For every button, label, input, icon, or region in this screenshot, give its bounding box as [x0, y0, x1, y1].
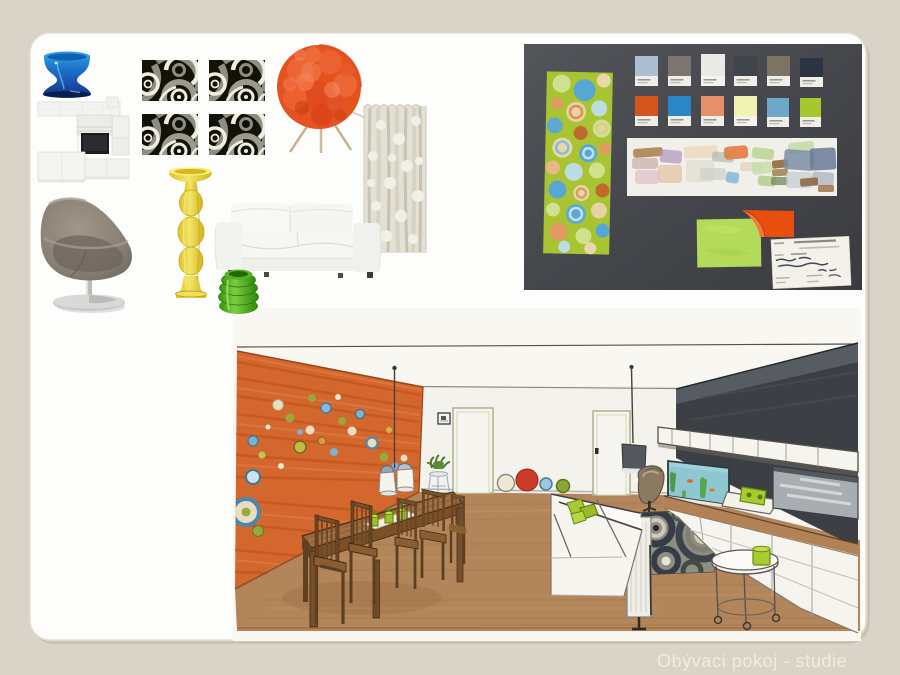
- svg-text:Obývaci pokoj - studie: Obývaci pokoj - studie: [657, 651, 847, 671]
